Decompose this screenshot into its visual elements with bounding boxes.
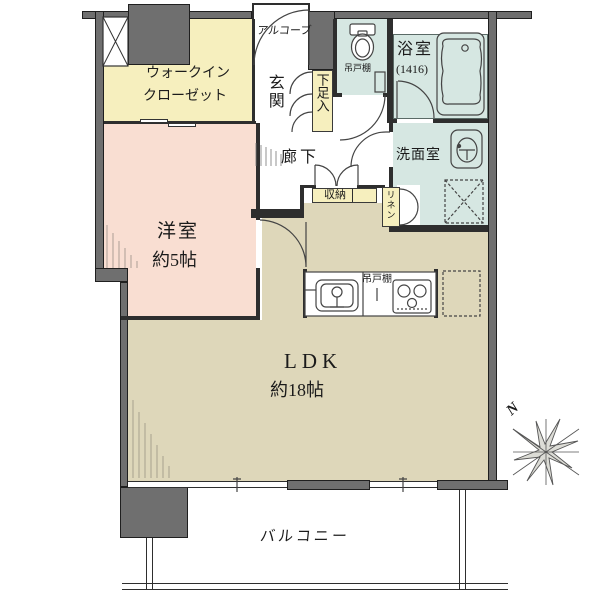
balcony-rail-outer [122, 583, 508, 584]
balcony-side-left-b [152, 538, 153, 590]
ldk-label: LDK [284, 350, 342, 372]
bedroom-label: 洋室 [157, 222, 199, 242]
floor-plan: ウォークイン クローゼット アルコーブ 玄関 下足入 廊下 吊戸棚 浴室 (14… [0, 0, 600, 600]
outer-wall-left-upper [95, 11, 104, 282]
toilet-shelf-label: 吊戸棚 [344, 64, 371, 73]
corridor-label: 廊下 [281, 150, 319, 167]
storage-door-arcs [315, 165, 358, 186]
entrance-wall-block [308, 11, 335, 70]
ldk-floor-under-storage [302, 203, 382, 320]
bedroom-size-label: 約5帖 [152, 251, 197, 270]
wall-wic-entrance [252, 19, 255, 123]
entrance-label: 玄関 [265, 74, 282, 110]
window-ldk-right-inner [370, 487, 437, 488]
walk-in-closet-label-line1: ウォークイン [146, 67, 230, 82]
compass-north-label: N [504, 400, 523, 419]
wall-corridor-ldk [251, 209, 304, 218]
wall-bedroom-right-upper [256, 123, 260, 220]
outer-wall-left-jog [95, 268, 128, 282]
shoe-cabinet-door-arcs [290, 72, 312, 132]
wall-washroom-left-upper [389, 123, 393, 132]
bathroom-label: 浴室 [397, 42, 433, 59]
shoe-cabinet-label: 下足入 [315, 73, 329, 112]
bathroom-size-label: (1416) [396, 63, 428, 76]
outer-wall-top-right [333, 11, 532, 19]
kitchen-shelf-label: 吊戸棚 [362, 275, 392, 286]
wall-toilet-bath [387, 19, 393, 123]
ldk-floor [128, 320, 488, 481]
washroom-label: 洗面室 [396, 149, 441, 164]
wall-toilet-left [333, 19, 337, 97]
storage-box-divider [352, 189, 353, 202]
alcove-label: アルコーブ [256, 26, 312, 38]
outer-wall-left-lower [120, 282, 128, 487]
balcony-rail-inner [122, 589, 508, 590]
balcony-divider-a [459, 490, 460, 589]
wic-sliding-door-a [140, 119, 168, 123]
washroom-door-arc [351, 132, 390, 167]
pillar-top-left [128, 4, 190, 65]
alcove-wall-top [252, 3, 310, 5]
outer-wall-bottom-mid [287, 480, 370, 490]
wall-corridor-ldk-step [300, 185, 304, 218]
wall-toilet-bottom-left [333, 93, 342, 97]
balcony-label: バルコニー [259, 530, 350, 546]
window-ldk-left-inner [128, 487, 287, 488]
outer-wall-right [488, 11, 497, 490]
ldk-size-label: 約18帖 [270, 381, 324, 400]
kitchen-stub-left [303, 269, 307, 318]
window-ldk-left-outer [128, 481, 287, 482]
bedroom-floor-lower [128, 270, 256, 316]
walk-in-closet-label-line2: クローゼット [143, 90, 227, 105]
pillar-bottom-left [120, 487, 188, 538]
washroom-entry-pocket [397, 185, 420, 228]
compass-star [513, 419, 579, 485]
linen-label: リネン [385, 190, 394, 220]
storage-label: 収納 [324, 190, 346, 202]
toilet-door-arc [340, 95, 385, 140]
wall-washroom-bottom [389, 225, 488, 232]
outer-wall-bottom-right [437, 480, 508, 490]
wall-bedroom-right-lower [256, 268, 260, 320]
wall-bedroom-bottom [121, 316, 260, 320]
window-ldk-right-outer [370, 481, 437, 482]
toilet-floor [337, 19, 387, 95]
kitchen-stub-right [434, 269, 438, 318]
balcony-side-left-a [146, 538, 147, 590]
wall-washroom-left-lower [389, 167, 393, 187]
balcony-divider-b [465, 490, 466, 589]
wall-bath-washroom-right [433, 119, 488, 123]
wic-sliding-door-b [168, 123, 196, 127]
